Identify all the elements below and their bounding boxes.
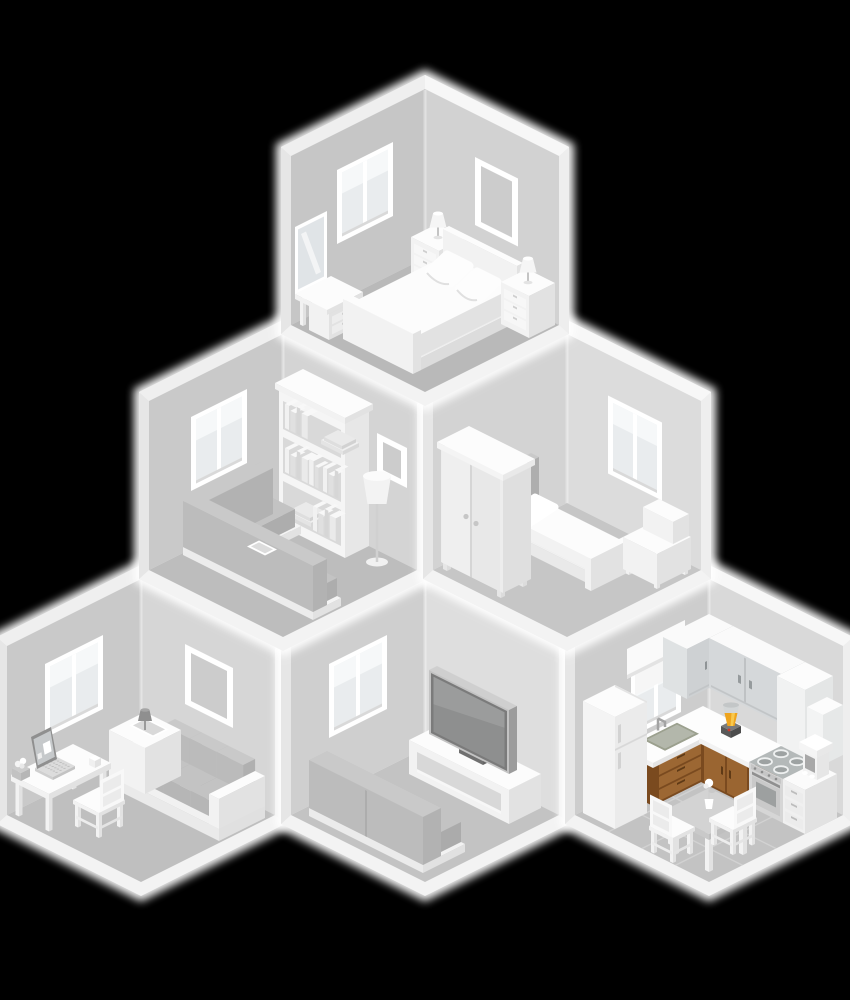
coffee-maker xyxy=(799,734,833,780)
room-master-bedroom xyxy=(281,75,569,406)
rooms-root xyxy=(0,75,850,896)
isometric-house-illustration: Isometric cutaway illustration of a six-… xyxy=(0,0,850,1000)
house-cutaway-scene: Isometric cutaway illustration of a six-… xyxy=(0,0,850,1000)
fridge xyxy=(583,685,647,829)
